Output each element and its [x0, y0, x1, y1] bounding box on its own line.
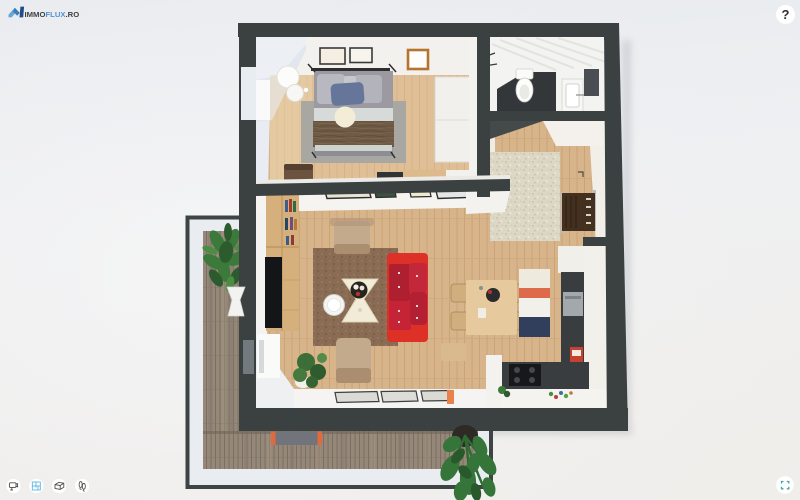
- svg-text:IMMOFLUX.RO: IMMOFLUX.RO: [25, 10, 80, 19]
- svg-text:?: ?: [782, 7, 790, 22]
